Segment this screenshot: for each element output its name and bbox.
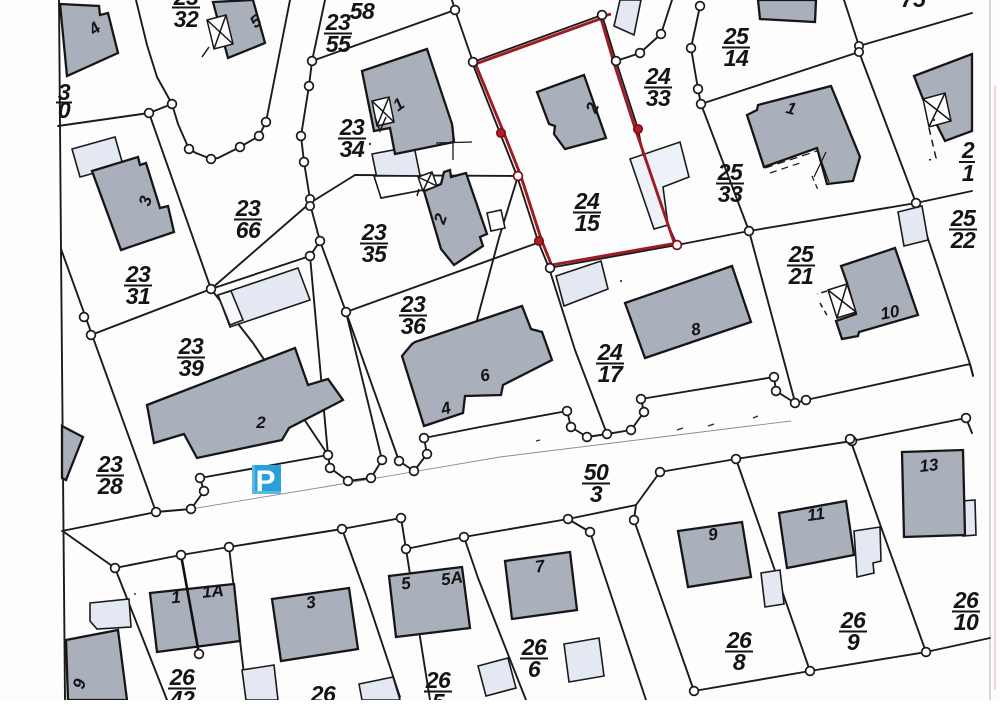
svg-text:9: 9	[847, 629, 860, 655]
svg-text:11: 11	[806, 504, 826, 525]
svg-text:21: 21	[788, 263, 814, 289]
svg-text:66: 66	[236, 217, 261, 243]
svg-text:32: 32	[174, 6, 199, 32]
svg-text:42: 42	[169, 686, 195, 700]
svg-text:33: 33	[718, 181, 743, 207]
svg-text:39: 39	[179, 355, 204, 381]
svg-text:10: 10	[879, 301, 901, 323]
svg-text:0: 0	[58, 97, 71, 123]
svg-text:33: 33	[646, 85, 671, 111]
svg-text:10: 10	[954, 609, 979, 635]
svg-text:55: 55	[326, 31, 352, 57]
svg-text:35: 35	[362, 241, 388, 267]
svg-text:15: 15	[575, 210, 601, 236]
svg-text:26: 26	[310, 681, 336, 700]
svg-text:58: 58	[350, 0, 375, 24]
svg-text:6: 6	[528, 656, 541, 682]
svg-text:1: 1	[170, 588, 181, 608]
svg-text:28: 28	[97, 473, 123, 499]
svg-text:36: 36	[401, 313, 426, 339]
svg-text:P: P	[255, 465, 275, 498]
svg-text:8: 8	[733, 649, 746, 675]
svg-text:34: 34	[340, 136, 365, 162]
svg-text:75: 75	[901, 0, 927, 12]
svg-text:5A: 5A	[440, 568, 464, 590]
svg-text:3: 3	[590, 481, 603, 507]
svg-text:1: 1	[962, 160, 974, 186]
svg-text:1A: 1A	[201, 581, 224, 602]
svg-text:5: 5	[432, 689, 446, 700]
svg-text:22: 22	[950, 227, 976, 253]
svg-text:17: 17	[598, 361, 624, 387]
svg-text:13: 13	[919, 455, 940, 476]
svg-text:31: 31	[126, 283, 151, 309]
svg-text:14: 14	[724, 45, 749, 71]
svg-text:2: 2	[255, 413, 266, 432]
